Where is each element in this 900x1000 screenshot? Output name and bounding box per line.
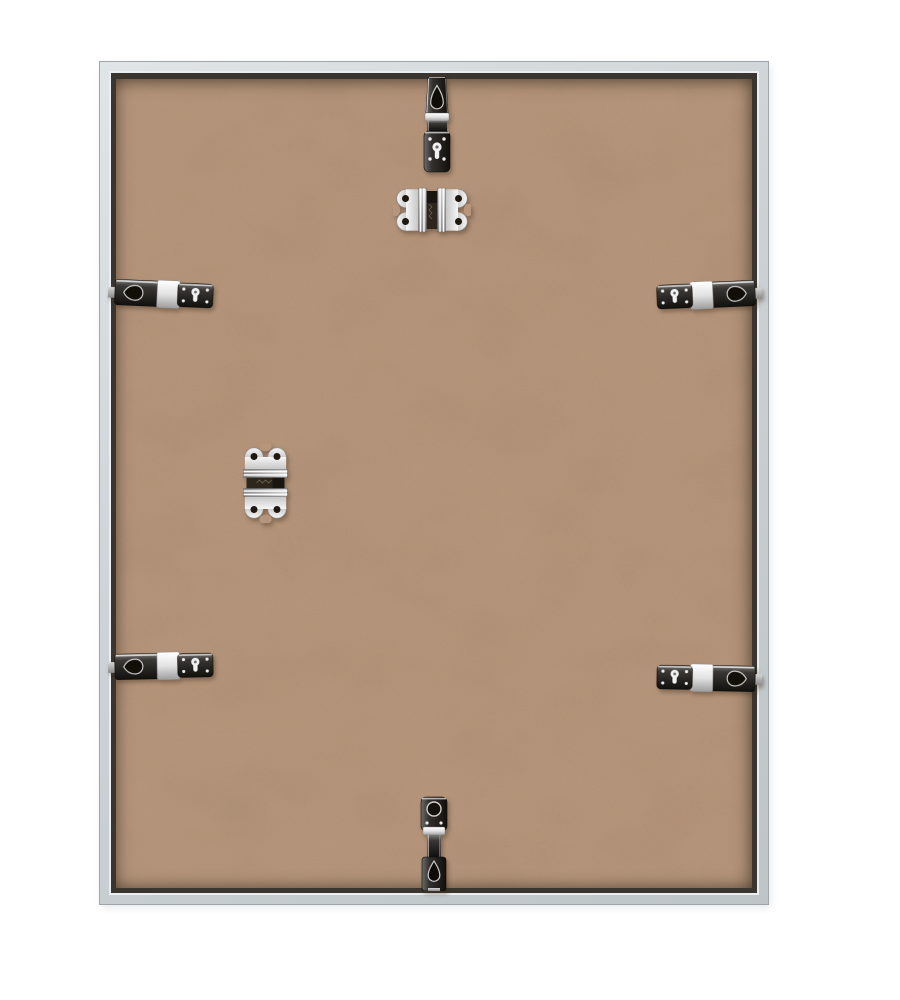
photo-canvas xyxy=(0,0,900,1000)
frame-back xyxy=(100,62,768,904)
backing-texture xyxy=(116,79,752,888)
frame-rabbet-shadow xyxy=(111,73,757,893)
backing-board xyxy=(116,79,752,888)
